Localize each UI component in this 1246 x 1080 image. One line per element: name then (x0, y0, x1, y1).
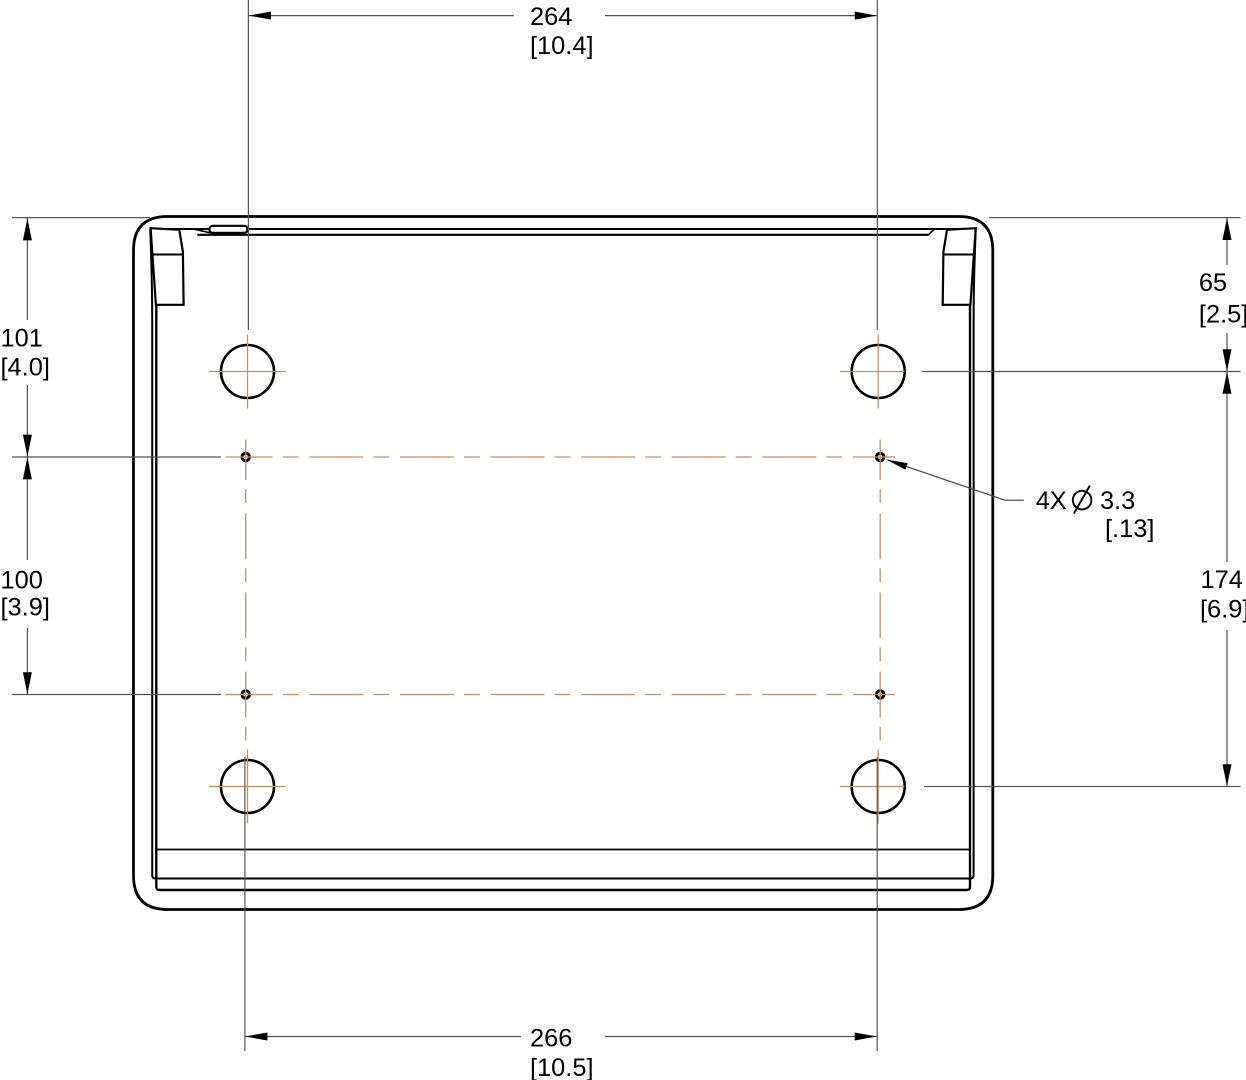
svg-text:[.13]: [.13] (1105, 515, 1154, 543)
svg-text:4X: 4X (1036, 487, 1067, 515)
svg-text:[2.5]: [2.5] (1199, 301, 1246, 329)
svg-text:101: 101 (1, 325, 43, 353)
svg-text:[4.0]: [4.0] (1, 353, 50, 381)
svg-text:264: 264 (530, 3, 572, 31)
svg-text:100: 100 (1, 567, 43, 595)
svg-text:[6.9]: [6.9] (1200, 596, 1246, 624)
svg-text:[10.4]: [10.4] (530, 32, 594, 60)
svg-text:3.3: 3.3 (1100, 487, 1135, 515)
svg-text:266: 266 (530, 1025, 572, 1053)
svg-text:174: 174 (1201, 566, 1243, 594)
svg-text:[10.5]: [10.5] (530, 1054, 594, 1080)
svg-text:[3.9]: [3.9] (1, 594, 50, 622)
svg-text:65: 65 (1199, 269, 1227, 297)
